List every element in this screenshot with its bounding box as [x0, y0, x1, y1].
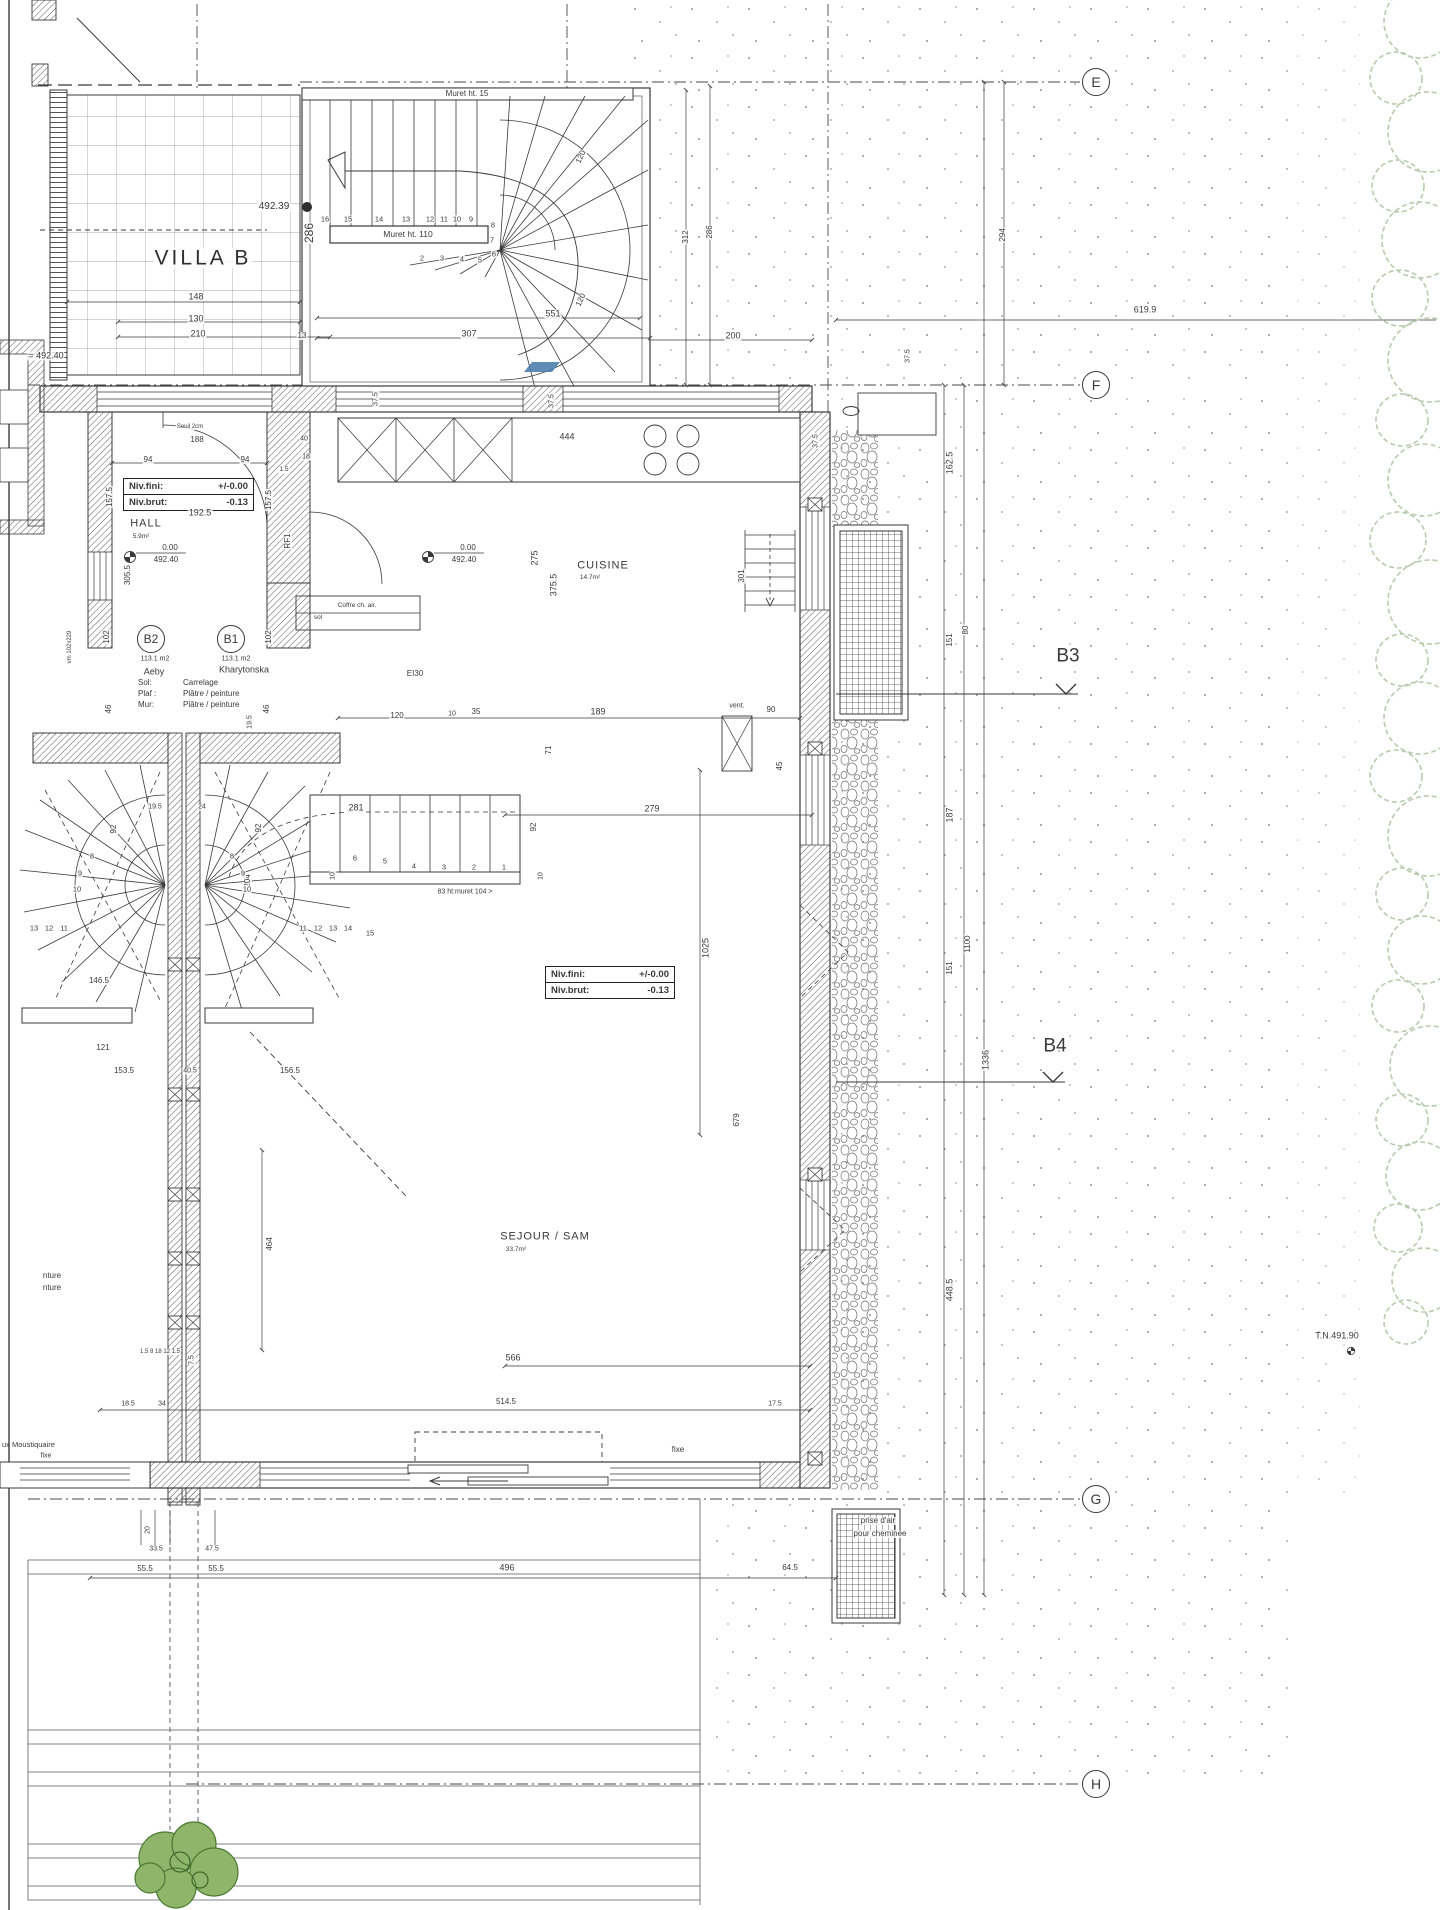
tree-outline [1374, 1204, 1422, 1252]
dim-label: 121 [95, 1044, 110, 1052]
terrace-villa-b [32, 0, 300, 380]
dim-label: 18.5 [120, 1401, 136, 1408]
dim-label: 130 [187, 315, 204, 324]
unit-b1-owner: Kharytonska [218, 666, 270, 675]
stair-tread-number: 9 [240, 869, 246, 877]
dim-label: 162.5 [946, 451, 955, 476]
dim-label: 679 [733, 1112, 741, 1127]
floor-plan-sheet: VILLA B E F G H B3 B4 HALL 5.9m² CUISINE… [0, 0, 1440, 1910]
dim-label: 47.5 [204, 1546, 220, 1553]
note-fixe-door: fixe [671, 1446, 685, 1454]
dim-label: 464 [266, 1236, 274, 1251]
dim-label: 189 [589, 708, 606, 717]
dim-label: 17.5 [767, 1401, 783, 1408]
grid-marker-g: G [1082, 1485, 1110, 1513]
note-coffre-2: sol [313, 615, 323, 622]
stair-tread-number: 16 [320, 215, 330, 223]
stair-tread-number: 14 [343, 924, 353, 932]
level-cuisine-rel: 0.00 [459, 544, 477, 552]
finish-sol-label: Sol: [138, 679, 152, 687]
dim-label: 1.5 8 18 12 1.5 [139, 1349, 181, 1355]
dim-label: 13 [297, 332, 308, 340]
facade-south-wall [0, 1432, 812, 1830]
grid-marker-h: H [1082, 1770, 1110, 1798]
stair-tread-number: 14 [374, 215, 384, 223]
tree-outline [1372, 270, 1428, 326]
text-fragment: nture [42, 1284, 62, 1292]
dim-label: 20 [145, 1525, 152, 1535]
stair-tread-number: 2 [471, 863, 477, 871]
tree-outline [1376, 634, 1428, 686]
dim-label: 10 [538, 871, 545, 881]
stair-tread-number: 5 [477, 256, 483, 264]
grid-marker-g-label: G [1091, 1491, 1102, 1507]
dim-label: 92 [530, 822, 538, 833]
stair-tread-number: 3 [439, 254, 445, 262]
tree-outline [1376, 868, 1428, 920]
unit-b1-circle: B1 [217, 625, 245, 653]
dim-label: 45 [776, 761, 784, 772]
dim-label: 37.5 [373, 391, 380, 407]
plan-linework [0, 0, 1440, 1910]
dim-label: 146.5 [88, 977, 110, 985]
niv-brut-value: -0.13 [647, 985, 669, 996]
dim-label: 120 [389, 712, 404, 720]
dim-label: 156.5 [279, 1067, 301, 1075]
dim-label: 1100 [964, 934, 972, 953]
stair-tread-number: 15 [365, 929, 375, 937]
dim-label: 18 [301, 454, 311, 461]
dim-label: 375.5 [550, 573, 559, 598]
dim-label: 157.5 [265, 489, 273, 511]
tree-outline [1384, 1300, 1428, 1344]
dim-label: 1025 [702, 937, 711, 959]
note-prise-air-2: pour cheminée [853, 1530, 908, 1538]
dim-label: 37.5 [549, 393, 556, 409]
unit-b1-area: 113.1 m2 [221, 656, 252, 663]
text-fragment: nture [42, 1272, 62, 1280]
dim-label: 151 [946, 960, 954, 975]
dim-619: 619.9 [1133, 306, 1158, 315]
stair-tread-number: 10 [242, 885, 252, 893]
dim-label: RF1 [284, 532, 292, 549]
dim-label: 33.5 [148, 1546, 164, 1553]
finish-plaf-label: Plaf : [138, 690, 156, 698]
dim-label: Seuil 2cm [176, 424, 204, 430]
dim-label: 71 [545, 745, 553, 756]
dim-label: 55.5 [207, 1565, 225, 1573]
dim-label: 10 [447, 711, 457, 718]
stair-tread-number: 13 [328, 924, 338, 932]
dim-label: 92 [255, 823, 263, 834]
level-hall-abs: 492.40 [153, 556, 179, 564]
stair-tread-number: 1 [501, 863, 507, 871]
dim-label: 40 [299, 436, 309, 443]
room-area-sejour: 33.7m² [505, 1247, 527, 1254]
dim-label: 10 [330, 871, 337, 881]
muret-stair-label: 83 ht:muret 104 > [436, 889, 493, 896]
dim-label: 286 [303, 222, 315, 244]
unit-b2-id: B2 [144, 632, 159, 646]
stair-tread-number: 4 [411, 862, 417, 870]
dim-label: 19.5 [147, 804, 163, 811]
tree-outline [1386, 1142, 1440, 1210]
dim-label: 444 [558, 433, 575, 442]
stair-tread-number: 4 [459, 255, 465, 263]
dim-label: 46 [263, 704, 271, 715]
dim-label: 275 [531, 549, 540, 566]
dim-label: 566 [504, 1354, 521, 1363]
dim-label: 94 [240, 456, 251, 464]
stair-tread-number: 8 [89, 852, 95, 860]
stair-tread-number: 6 [491, 250, 497, 258]
dim-label: 200 [724, 332, 741, 341]
dim-label: 102 [265, 629, 273, 644]
stair-tread-number: 9 [77, 869, 83, 877]
dim-label: 80 [962, 625, 970, 636]
niv-fini-label: Niv.fini: [551, 969, 585, 980]
shrub [135, 1822, 238, 1908]
level-box-sejour: Niv.fini:+/-0.00 Niv.brut:-0.13 [545, 966, 675, 999]
unit-b2-owner: Aeby [143, 668, 166, 677]
tree-outline [1376, 1094, 1428, 1146]
stair-tread-number: 11 [59, 924, 69, 932]
tree-outline [1370, 512, 1426, 568]
dim-label: 294 [999, 227, 1007, 242]
dim-label: 286 [706, 224, 714, 239]
stair-tread-number: 9 [468, 215, 474, 223]
dim-label: 35 [471, 708, 482, 716]
dim-label: 312 [682, 229, 690, 244]
niv-brut-label: Niv.brut: [551, 985, 589, 996]
room-area-cuisine: 14.7m² [579, 575, 601, 582]
dim-label: 64.5 [781, 1564, 799, 1572]
muret-top-label: Muret ht. 15 [445, 90, 490, 98]
dim-label: 46 [105, 704, 113, 715]
dim-label: 301 [738, 568, 746, 583]
level-benchmark: 492.39 [258, 202, 291, 212]
finish-mur-label: Mur: [138, 701, 154, 709]
dim-label: 37.5 [905, 348, 912, 364]
room-label-hall: HALL [129, 519, 163, 530]
stair-tread-number: 7 [489, 236, 495, 244]
grid-marker-e: E [1082, 68, 1110, 96]
grid-marker-f-label: F [1092, 377, 1101, 393]
exterior-curved-stair [302, 88, 650, 390]
terrain-level: T.N.491.90 [1314, 1332, 1360, 1341]
stair-tread-number: 8 [229, 852, 235, 860]
tree-outline [1376, 394, 1428, 446]
finish-sol-value: Carrelage [183, 679, 218, 687]
dim-label: 157.5 [106, 486, 114, 508]
tree-outline [1372, 980, 1424, 1032]
tree-outline [1382, 202, 1440, 278]
dim-label: 1336 [982, 1049, 991, 1071]
dim-label: 448.5 [946, 1278, 955, 1303]
dim-label: 55.5 [136, 1565, 154, 1573]
tree-outline [1388, 318, 1440, 402]
vegetation-band [1370, 0, 1440, 1344]
niv-fini-value: +/-0.00 [218, 481, 248, 492]
dim-label: 90 [766, 706, 777, 714]
room-area-hall: 5.9m² [132, 534, 151, 541]
tree-outline [1384, 0, 1440, 58]
note-coffre-1: Coffre ch. air. [337, 603, 378, 610]
finish-plaf-value: Plâtre / peinture [183, 690, 239, 698]
tree-outline [1388, 916, 1440, 984]
dim-label: 148 [187, 293, 204, 302]
stair-tread-number: 11 [298, 924, 308, 932]
tree-outline [1388, 796, 1440, 876]
site-stipple [620, 0, 1360, 1784]
muret-mid-label: Muret ht. 110 [382, 230, 433, 239]
stair-tread-number: 13 [401, 215, 411, 223]
dim-label: 281 [347, 804, 364, 813]
tree-outline [1372, 160, 1424, 212]
grid-marker-h-label: H [1091, 1776, 1101, 1792]
niv-brut-value: -0.13 [226, 497, 248, 508]
note-prise-air-1: prise d'air [860, 1517, 896, 1525]
note-vent: vent. [728, 703, 745, 710]
dim-label: 496 [498, 1564, 515, 1573]
level-hall-rel: 0.00 [161, 544, 179, 552]
room-label-cuisine: CUISINE [576, 561, 630, 572]
room-label-sejour: SEJOUR / SAM [499, 1232, 591, 1243]
stair-tread-number: 12 [313, 924, 323, 932]
dim-label: 188 [189, 436, 204, 444]
section-marker-b3: B3 [1055, 647, 1080, 666]
dim-label: 192.5 [188, 509, 213, 518]
note-moustiquaire: ux Moustiquaire [2, 1441, 55, 1449]
dim-label: 1.5 [278, 467, 289, 474]
level-cuisine-abs: 492.40 [451, 556, 477, 564]
dim-label: 151 [946, 632, 954, 647]
unit-b2-circle: B2 [137, 625, 165, 653]
deck-lines-south [28, 1499, 700, 1905]
unit-b2-area: 113.1 m2 [140, 656, 171, 663]
left-edge-fragments [0, 340, 44, 534]
tree-outline [1388, 560, 1440, 644]
tree-outline [1384, 682, 1440, 754]
dim-label: 94 [143, 456, 154, 464]
dim-label: 153.5 [113, 1067, 135, 1075]
tree-outline [1370, 52, 1422, 104]
stair-tread-number: 11 [439, 215, 449, 223]
dim-label: 37.5 [813, 433, 820, 449]
stair-tread-number: 5 [382, 857, 388, 865]
grid-marker-f: F [1082, 371, 1110, 399]
grid-marker-e-label: E [1091, 74, 1100, 90]
dim-label: 551 [544, 310, 561, 319]
section-marker-b4: B4 [1042, 1037, 1067, 1056]
niv-fini-value: +/-0.00 [639, 969, 669, 980]
stair-tread-number: 12 [425, 215, 435, 223]
niv-brut-label: Niv.brut: [129, 497, 167, 508]
interior-walls [33, 412, 382, 1505]
dim-label: 40.5 [182, 1068, 198, 1075]
stair-tread-number: 15 [343, 215, 353, 223]
stair-tread-number: 6 [352, 854, 358, 862]
dim-label: 514.5 [495, 1398, 517, 1406]
villa-title: VILLA B [154, 248, 253, 269]
dim-label: 92 [110, 824, 118, 835]
dim-label: vm 102x229 [67, 630, 73, 665]
stair-tread-number: 13 [29, 924, 39, 932]
stair-tread-number: 12 [44, 924, 54, 932]
stair-tread-number: 8 [490, 221, 496, 229]
tree-outline [1390, 1026, 1440, 1106]
dim-label: 210 [189, 330, 206, 339]
note-fixe-left: fixe [40, 1453, 53, 1460]
level-dot [302, 202, 312, 212]
dim-label: 187 [946, 806, 955, 823]
dim-label: 305.5 [124, 564, 132, 586]
dim-label: 34 [157, 1401, 167, 1408]
level-left: = 492.40 [27, 352, 64, 361]
dim-label: 102 [103, 629, 111, 644]
stair-tread-number: 10 [72, 885, 82, 893]
dim-label: 24 [197, 804, 207, 811]
stair-tread-number: 3 [441, 863, 447, 871]
note-ei30: EI30 [406, 670, 424, 678]
dim-label: 307 [460, 330, 477, 339]
tree-outline [1370, 750, 1422, 802]
stair-tread-number: 2 [419, 254, 425, 262]
dim-label: 7.5 [189, 1354, 196, 1366]
dim-label: 279 [643, 805, 660, 814]
level-box-hall: Niv.fini:+/-0.00 Niv.brut:-0.13 [123, 478, 254, 511]
tree-outline [1388, 444, 1440, 516]
stair-tread-number: 10 [452, 215, 462, 223]
finish-mur-value: Plâtre / peinture [183, 701, 239, 709]
niv-fini-label: Niv.fini: [129, 481, 163, 492]
unit-b1-id: B1 [224, 632, 239, 646]
dim-label: 19.5 [247, 714, 254, 730]
